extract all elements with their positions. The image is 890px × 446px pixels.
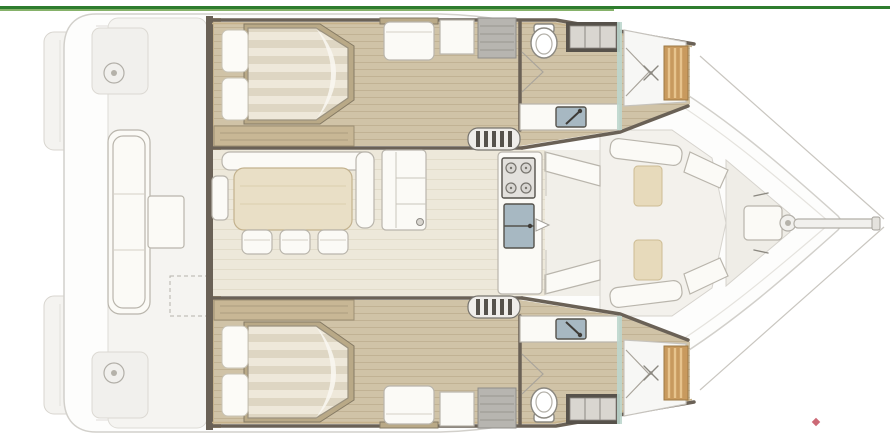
cockpit-bench (113, 136, 145, 308)
stool (318, 230, 348, 254)
shower-glass-wall (617, 22, 622, 130)
salon-cabinet (382, 150, 426, 230)
cooktop (502, 158, 535, 198)
salon-aft-wall (206, 16, 213, 430)
stool (280, 230, 310, 254)
bow-locker (744, 206, 782, 240)
pillow (222, 78, 248, 120)
stool (242, 230, 272, 254)
bowsprit (794, 219, 876, 228)
berth-shelf (214, 126, 354, 146)
settee-back (222, 152, 374, 170)
hull-cabinet (440, 20, 474, 54)
settee-side (356, 152, 374, 228)
settee-armrest (212, 176, 228, 220)
floorplan-canvas (0, 0, 890, 446)
aft-cockpit (92, 18, 208, 428)
cabinet-knob (417, 219, 424, 226)
cockpit-table (148, 196, 184, 248)
dining-table (234, 168, 352, 230)
bowsprit-tip (872, 217, 880, 230)
pillow (222, 30, 248, 72)
forward-seat-cushion (634, 166, 662, 206)
hull-seat (384, 22, 434, 60)
hull-locker (478, 18, 516, 58)
catamaran-floorplan (0, 0, 890, 446)
